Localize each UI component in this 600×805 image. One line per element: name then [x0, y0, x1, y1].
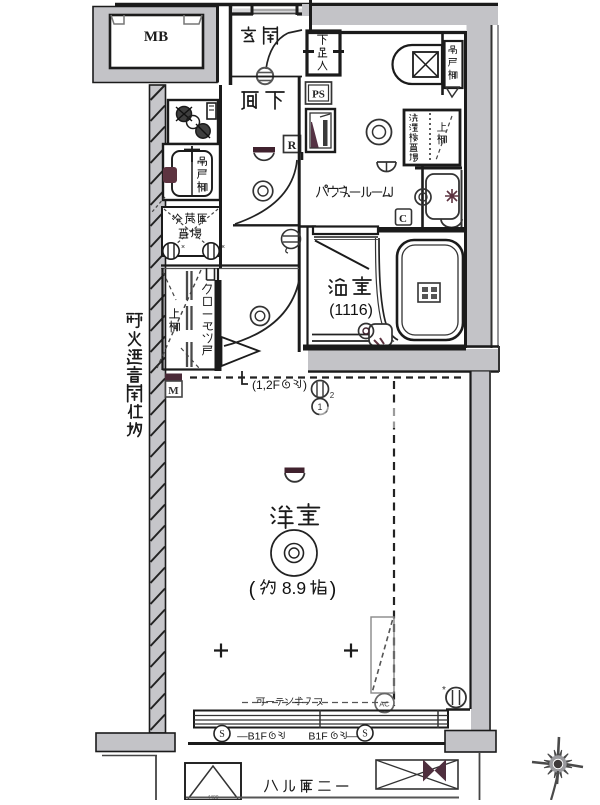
svg-text:(1116): (1116) [329, 302, 373, 319]
svg-text:—B1F: —B1F [237, 731, 267, 743]
svg-text:): ) [303, 378, 307, 392]
svg-text:×: × [181, 244, 185, 251]
svg-text:(1,2F: (1,2F [252, 378, 280, 392]
svg-text:S: S [362, 729, 368, 740]
svg-text:R: R [288, 138, 297, 152]
svg-text:C: C [399, 213, 407, 225]
svg-text:—: — [347, 731, 358, 743]
svg-text:MB: MB [144, 29, 168, 45]
svg-text:M: M [168, 385, 179, 397]
svg-text:AC: AC [379, 700, 390, 709]
svg-text:×: × [221, 244, 225, 251]
svg-text:8.9: 8.9 [282, 578, 306, 598]
svg-text:(: ( [249, 579, 256, 601]
svg-text:*: * [442, 685, 446, 696]
svg-text:a t h o m e: a t h o m e [188, 393, 452, 437]
svg-text:S: S [219, 729, 225, 740]
svg-text:): ) [330, 579, 337, 601]
svg-text:B1F: B1F [308, 731, 327, 743]
svg-text:PS: PS [312, 89, 325, 101]
